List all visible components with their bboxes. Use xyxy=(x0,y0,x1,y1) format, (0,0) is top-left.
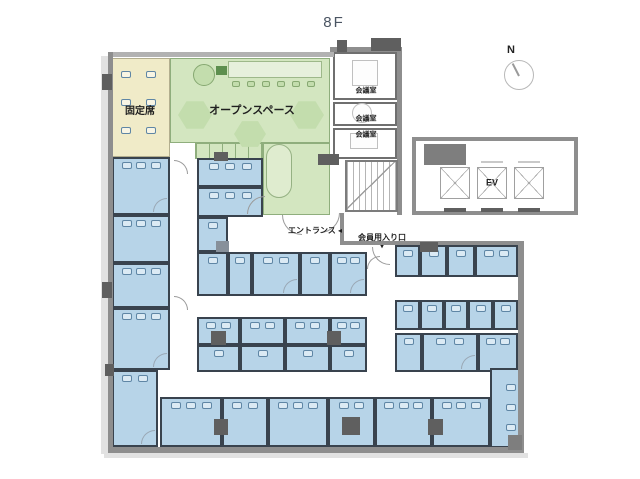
room-label: ▾ xyxy=(380,244,384,251)
desk-icon xyxy=(303,350,313,357)
desk-icon xyxy=(151,220,161,227)
wall-block xyxy=(102,282,112,298)
wall xyxy=(108,447,524,453)
wall xyxy=(518,241,524,451)
desk-icon xyxy=(442,402,452,409)
desk-icon xyxy=(136,162,146,169)
compass-needle-icon xyxy=(512,63,520,76)
desk-icon xyxy=(151,162,161,169)
stool-icon xyxy=(277,81,285,87)
desk-icon xyxy=(500,338,510,345)
desk-icon xyxy=(506,384,516,391)
stool-icon xyxy=(292,81,300,87)
wall-block xyxy=(214,419,228,435)
desk-icon xyxy=(121,99,131,106)
wall-block xyxy=(105,364,114,376)
wall-shadow xyxy=(101,56,108,454)
office-room xyxy=(240,317,285,345)
wall xyxy=(518,161,540,163)
wall-shadow xyxy=(104,453,528,458)
room-label: 会議室 xyxy=(356,116,377,123)
desk-icon xyxy=(122,375,132,382)
desk-icon xyxy=(344,350,354,357)
stool-icon xyxy=(247,81,255,87)
desk-icon xyxy=(122,220,132,227)
desk-icon xyxy=(263,257,273,264)
desk-icon xyxy=(506,404,516,411)
desk-icon xyxy=(250,322,260,329)
wall-block xyxy=(327,331,341,345)
desk-icon xyxy=(202,402,212,409)
desk-icon xyxy=(146,127,156,134)
wall xyxy=(574,137,578,215)
rect-table-icon xyxy=(216,66,227,75)
wall xyxy=(108,52,113,452)
desk-icon xyxy=(242,163,252,170)
desk-icon xyxy=(436,338,446,345)
wall-block xyxy=(102,74,112,90)
room-label: 固定席 xyxy=(125,107,155,117)
wall-block xyxy=(424,144,466,165)
desk-icon xyxy=(122,162,132,169)
oval-table-icon xyxy=(266,144,292,198)
room-label: EV xyxy=(486,179,498,188)
wall-block xyxy=(371,38,401,51)
desk-icon xyxy=(295,322,305,329)
desk-icon xyxy=(151,268,161,275)
desk-icon xyxy=(337,257,347,264)
desk-icon xyxy=(136,268,146,275)
desk-icon xyxy=(232,402,242,409)
desk-icon xyxy=(454,338,464,345)
desk-icon xyxy=(208,222,218,229)
desk-icon xyxy=(499,250,509,257)
desk-icon xyxy=(209,163,219,170)
floor-title: 8F xyxy=(304,14,364,31)
desk-icon xyxy=(171,402,181,409)
wall-block xyxy=(214,152,228,161)
wall-block xyxy=(420,242,438,252)
desk-icon xyxy=(501,305,511,312)
wall xyxy=(412,137,578,141)
stool-icon xyxy=(307,81,315,87)
rect-table-icon xyxy=(352,60,378,86)
desk-icon xyxy=(413,402,423,409)
desk-icon xyxy=(456,250,466,257)
desk-icon xyxy=(151,313,161,320)
desk-icon xyxy=(242,192,252,199)
wall-block xyxy=(428,419,443,435)
desk-icon xyxy=(278,402,288,409)
circle-table-icon xyxy=(193,64,215,86)
desk-icon xyxy=(350,322,360,329)
stool-icon xyxy=(262,81,270,87)
desk-icon xyxy=(476,305,486,312)
desk-icon xyxy=(265,322,275,329)
wall-block xyxy=(318,154,339,165)
door-arc-icon xyxy=(174,296,188,310)
desk-icon xyxy=(279,257,289,264)
wall-block xyxy=(508,435,522,450)
desk-icon xyxy=(258,350,268,357)
wall-block xyxy=(337,40,347,52)
desk-icon xyxy=(221,322,231,329)
desk-icon xyxy=(451,305,461,312)
desk-icon xyxy=(384,402,394,409)
office-room xyxy=(285,317,330,345)
desk-icon xyxy=(471,402,481,409)
desk-icon xyxy=(122,313,132,320)
wall-block xyxy=(481,208,503,212)
door-arc-icon xyxy=(367,256,380,269)
desk-icon xyxy=(354,402,364,409)
wall-block xyxy=(211,331,226,345)
desk-icon xyxy=(225,163,235,170)
elevator-shaft-icon xyxy=(440,167,470,199)
desk-icon xyxy=(293,402,303,409)
floor-plan-canvas: 8F N 固定席オープンスペース会議室会議室会議室EVエントランス ◂会員用入り… xyxy=(0,0,640,479)
desk-icon xyxy=(208,257,218,264)
desk-icon xyxy=(339,402,349,409)
wall-block xyxy=(216,241,229,252)
wall xyxy=(412,137,416,215)
desk-icon xyxy=(146,71,156,78)
room-label: エントランス ◂ xyxy=(288,227,342,235)
desk-icon xyxy=(403,250,413,257)
desk-icon xyxy=(484,250,494,257)
desk-icon xyxy=(456,402,466,409)
compass-north-label: N xyxy=(503,44,519,56)
desk-icon xyxy=(403,305,413,312)
desk-icon xyxy=(486,338,496,345)
desk-icon xyxy=(138,375,148,382)
desk-icon xyxy=(350,257,360,264)
desk-icon xyxy=(399,402,409,409)
wall-block xyxy=(444,208,466,212)
wall-block xyxy=(342,417,360,435)
office-room xyxy=(478,333,518,372)
rect-table-icon xyxy=(228,61,322,78)
elevator-shaft-icon xyxy=(514,167,544,199)
desk-icon xyxy=(209,192,219,199)
wall-block xyxy=(518,208,540,212)
desk-icon xyxy=(308,402,318,409)
desk-icon xyxy=(121,127,131,134)
desk-icon xyxy=(214,350,224,357)
desk-icon xyxy=(337,322,347,329)
desk-icon xyxy=(427,305,437,312)
room-label: オープンスペース xyxy=(209,106,295,117)
stool-icon xyxy=(232,81,240,87)
room-label: 会議室 xyxy=(356,132,377,139)
wall xyxy=(481,161,503,163)
staircase xyxy=(345,160,398,212)
compass-circle-icon xyxy=(504,60,534,90)
desk-icon xyxy=(146,99,156,106)
room-label: 会議室 xyxy=(356,88,377,95)
desk-icon xyxy=(248,402,258,409)
office-room xyxy=(475,245,518,277)
desk-icon xyxy=(310,257,320,264)
desk-icon xyxy=(225,192,235,199)
desk-icon xyxy=(310,322,320,329)
desk-icon xyxy=(186,402,196,409)
desk-icon xyxy=(235,257,245,264)
wall xyxy=(108,52,334,57)
desk-icon xyxy=(122,268,132,275)
room-label: 会員用入り口 xyxy=(358,234,406,242)
desk-icon xyxy=(206,322,216,329)
office-room xyxy=(222,397,268,447)
desk-icon xyxy=(136,313,146,320)
desk-icon xyxy=(506,424,516,431)
desk-icon xyxy=(404,338,414,345)
desk-icon xyxy=(136,220,146,227)
desk-icon xyxy=(121,71,131,78)
door-arc-icon xyxy=(174,160,188,174)
